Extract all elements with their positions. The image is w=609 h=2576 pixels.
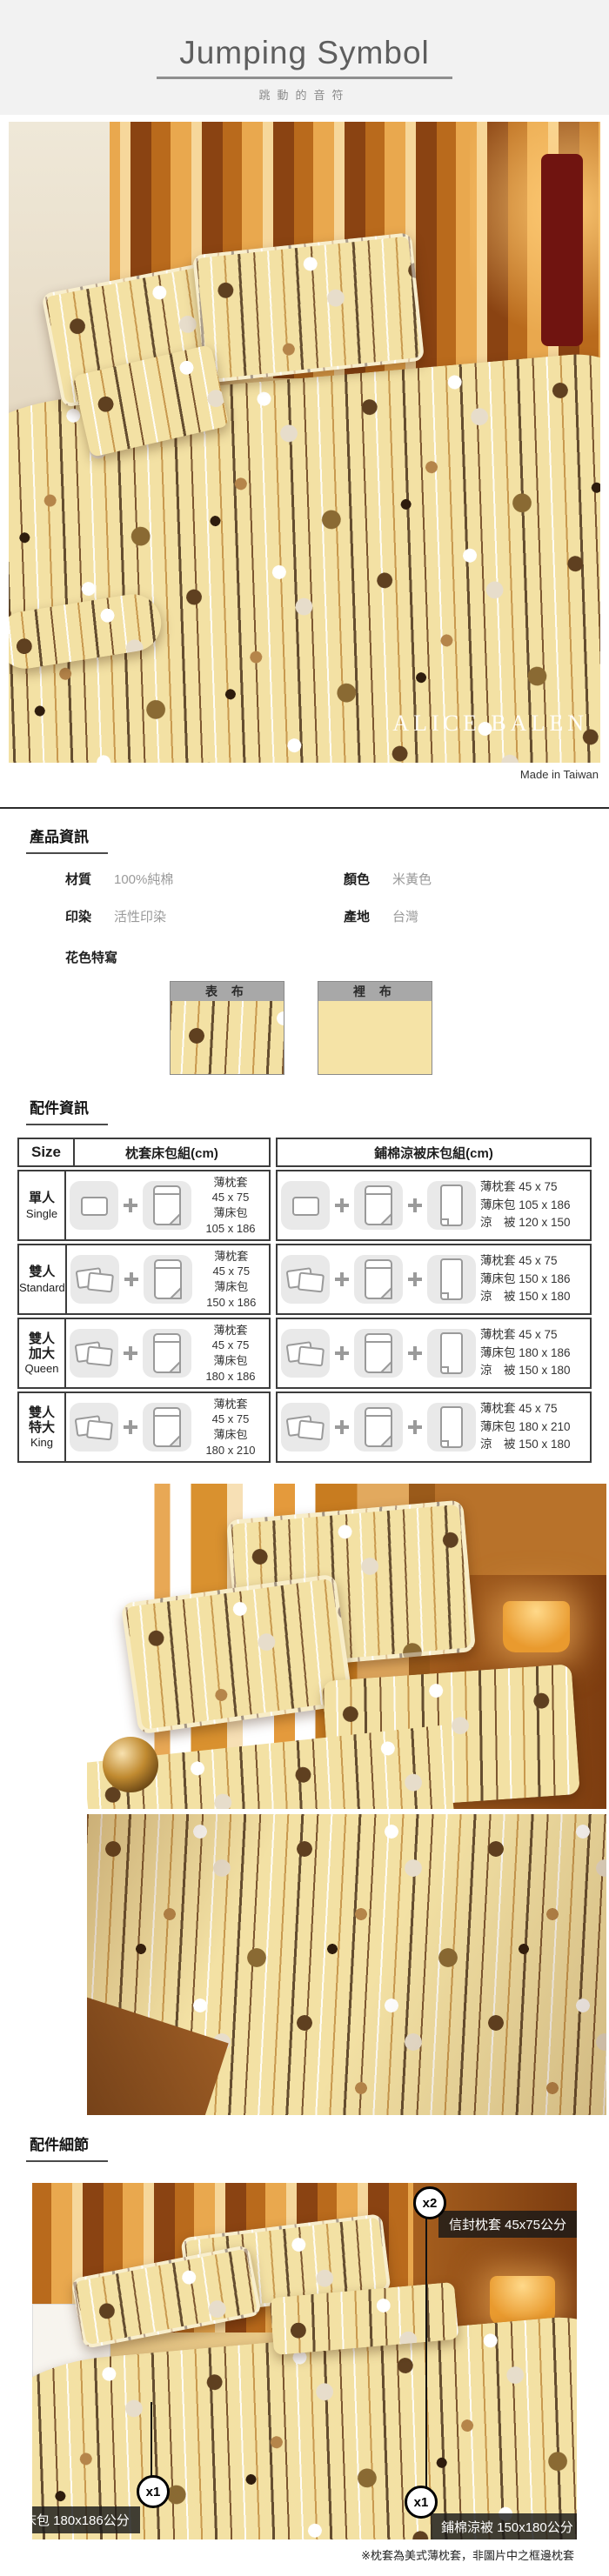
table-header-row: Size 枕套床包組(cm) xyxy=(17,1138,271,1167)
set-cell: 薄枕套45 x 75 薄床包180 x 186 xyxy=(66,1319,269,1387)
product-page: Jumping Symbol 跳動的音符 ALICE BALEN Made in… xyxy=(0,0,609,2576)
plus-icon xyxy=(124,1271,139,1287)
set-cell: 薄枕套 45 x 75 薄床包 150 x 186 涼 被 150 x 180 xyxy=(278,1245,599,1313)
set-cell: 薄枕套45 x 75 薄床包150 x 186 xyxy=(67,1245,270,1313)
table-row: 雙人特大 King 薄枕套45 x 75 薄床包180 x 210 xyxy=(17,1391,271,1463)
pillow-closeup-photo xyxy=(87,1484,606,1809)
pillow-pair-icon xyxy=(281,1403,330,1452)
table-row: 薄枕套 45 x 75 薄床包 150 x 186 涼 被 150 x 180 xyxy=(276,1244,592,1315)
table-row: 雙人 Standard 薄枕套45 x 75 薄床包150 x 186 xyxy=(17,1244,271,1315)
sheet-icon xyxy=(143,1181,191,1230)
material-value: 100%純棉 xyxy=(114,870,344,888)
set2-sizes: 薄枕套 45 x 75 薄床包 180 x 210 涼 被 150 x 180 xyxy=(480,1400,595,1455)
pillow-icon xyxy=(281,1181,330,1230)
quilt-icon xyxy=(427,1255,476,1304)
lining-fabric-swatch: 裡 布 xyxy=(318,981,432,1075)
size-en: Queen xyxy=(24,1362,58,1375)
size-header: Size xyxy=(19,1139,75,1165)
sheet-icon xyxy=(354,1329,403,1378)
quilt-callout-label: 鋪棉涼被 150x180公分 xyxy=(431,2513,577,2539)
table-row: 薄枕套 45 x 75 薄床包 105 x 186 涼 被 120 x 150 xyxy=(276,1170,592,1241)
hero-photo: ALICE BALEN xyxy=(9,122,600,763)
plus-icon xyxy=(123,1345,138,1361)
set1-sizes: 薄枕套45 x 75 薄床包180 x 186 xyxy=(196,1323,265,1384)
details-heading: 配件細節 xyxy=(26,2132,108,2162)
pillowcase-note: ※枕套為美式薄枕套，非圖片中之框邊枕套 xyxy=(361,2546,574,2563)
quilt-set-header: 鋪棉涼被床包組(cm) xyxy=(278,1139,590,1165)
lamp-shade xyxy=(503,1601,571,1653)
size-en: King xyxy=(30,1436,53,1449)
accessories-heading: 配件資訊 xyxy=(26,1096,108,1125)
brand-watermark: ALICE BALEN xyxy=(392,711,588,737)
lining-swatch-label: 裡 布 xyxy=(318,982,432,1001)
plus-icon xyxy=(334,1345,350,1361)
set-cell: 薄枕套 45 x 75 薄床包 105 x 186 涼 被 120 x 150 xyxy=(278,1171,599,1239)
quilt-icon xyxy=(427,1181,476,1230)
set2-sizes: 薄枕套 45 x 75 薄床包 150 x 186 涼 被 150 x 180 xyxy=(480,1252,595,1307)
quilt-count-badge: x1 xyxy=(405,2486,438,2519)
brass-ball-ornament xyxy=(103,1737,158,1792)
size-cell: 雙人 Standard xyxy=(19,1245,67,1313)
duvet-closeup-photo xyxy=(87,1814,606,2115)
set-cell: 薄枕套 45 x 75 薄床包 180 x 186 涼 被 150 x 180 xyxy=(278,1319,599,1387)
plus-icon xyxy=(407,1419,423,1435)
size-zh: 單人 xyxy=(26,1191,57,1205)
plus-icon xyxy=(407,1198,423,1213)
sheet-icon xyxy=(354,1403,403,1452)
front-swatch-label: 表 布 xyxy=(171,982,284,1001)
set-cell: 薄枕套 45 x 75 薄床包 180 x 210 涼 被 150 x 180 xyxy=(278,1393,599,1461)
plus-icon xyxy=(334,1271,350,1287)
table-header-row: 鋪棉涼被床包組(cm) xyxy=(276,1138,592,1167)
product-info-heading: 產品資訊 xyxy=(26,824,108,854)
callout-line-quilt xyxy=(425,2216,427,2496)
plus-icon xyxy=(123,1419,138,1435)
size-en: Single xyxy=(26,1207,57,1220)
sheet-count-badge: x1 xyxy=(137,2475,170,2508)
front-swatch-image xyxy=(171,1001,284,1074)
quilt-icon xyxy=(427,1329,476,1378)
accessories-table: Size 枕套床包組(cm) 單人 Single 薄枕套45 x 75 薄床包1… xyxy=(17,1138,592,1463)
size-en: Standard xyxy=(19,1281,65,1294)
pillow-pair-icon xyxy=(70,1255,119,1304)
pillowcase-callout-label: 信封枕套 45x75公分 xyxy=(438,2211,577,2238)
pillow-right xyxy=(192,232,425,384)
table-row: 雙人加大 Queen 薄枕套45 x 75 薄床包180 x 186 xyxy=(17,1318,271,1389)
pillow-set-header: 枕套床包組(cm) xyxy=(75,1139,269,1165)
size-zh: 雙人加大 xyxy=(26,1331,57,1362)
size-cell: 單人 Single xyxy=(19,1171,66,1239)
sheet-icon xyxy=(143,1403,191,1452)
front-fabric-swatch: 表 布 xyxy=(170,981,284,1075)
print-label: 印染 xyxy=(65,907,114,925)
print-value: 活性印染 xyxy=(114,907,344,925)
product-info-grid: 材質 100%純棉 顏色 米黃色 印染 活性印染 產地 台灣 xyxy=(65,870,552,925)
pillow-pair-icon xyxy=(281,1255,330,1304)
pillow-pair-icon xyxy=(70,1329,118,1378)
section-divider xyxy=(0,807,609,809)
table-row: 單人 Single 薄枕套45 x 75 薄床包105 x 186 xyxy=(17,1170,271,1241)
lining-swatch-body xyxy=(318,1001,432,1074)
plus-icon xyxy=(407,1271,423,1287)
pattern-closeup-heading: 花色特寫 xyxy=(65,948,117,966)
size-zh: 雙人 xyxy=(26,1265,57,1279)
page-title: Jumping Symbol xyxy=(157,35,452,79)
lamp-column xyxy=(541,154,583,346)
quilt-set-table: 鋪棉涼被床包組(cm) 薄枕套 45 x 75 薄床包 105 x 186 涼 … xyxy=(276,1138,592,1463)
set1-sizes: 薄枕套45 x 75 薄床包105 x 186 xyxy=(196,1175,265,1236)
set-cell: 薄枕套45 x 75 薄床包105 x 186 xyxy=(66,1171,269,1239)
plus-icon xyxy=(334,1419,350,1435)
sheet-icon xyxy=(354,1181,403,1230)
plus-icon xyxy=(407,1345,423,1361)
set-cell: 薄枕套45 x 75 薄床包180 x 210 xyxy=(66,1393,269,1461)
pillow-pair-icon xyxy=(70,1403,118,1452)
details-photo: x2 信封枕套 45x75公分 x1 薄床包 180x186公分 x1 鋪棉涼被… xyxy=(32,2183,577,2539)
material-label: 材質 xyxy=(65,870,114,888)
plus-icon xyxy=(123,1198,138,1213)
size-cell: 雙人特大 King xyxy=(19,1393,66,1461)
quilt-icon xyxy=(427,1403,476,1452)
pillow-set-table: Size 枕套床包組(cm) 單人 Single 薄枕套45 x 75 薄床包1… xyxy=(17,1138,271,1463)
pillowcase-count-badge: x2 xyxy=(413,2186,446,2219)
made-in-label: Made in Taiwan xyxy=(520,768,599,781)
plus-icon xyxy=(334,1198,350,1213)
sheet-icon xyxy=(354,1255,403,1304)
sheet-callout-label: 薄床包 180x186公分 xyxy=(32,2506,140,2533)
color-label: 顏色 xyxy=(344,870,392,888)
size-zh: 雙人特大 xyxy=(26,1405,57,1436)
sheet-icon xyxy=(143,1329,191,1378)
table-row: 薄枕套 45 x 75 薄床包 180 x 186 涼 被 150 x 180 xyxy=(276,1318,592,1389)
set2-sizes: 薄枕套 45 x 75 薄床包 105 x 186 涼 被 120 x 150 xyxy=(480,1178,595,1233)
page-header: Jumping Symbol 跳動的音符 xyxy=(0,0,609,115)
pillow-icon xyxy=(70,1181,118,1230)
table-row: 薄枕套 45 x 75 薄床包 180 x 210 涼 被 150 x 180 xyxy=(276,1391,592,1463)
sheet-icon xyxy=(144,1255,192,1304)
color-value: 米黃色 xyxy=(392,870,552,888)
size-cell: 雙人加大 Queen xyxy=(19,1319,66,1387)
origin-value: 台灣 xyxy=(392,907,552,925)
pillow-pair-icon xyxy=(281,1329,330,1378)
set2-sizes: 薄枕套 45 x 75 薄床包 180 x 186 涼 被 150 x 180 xyxy=(480,1326,595,1381)
page-subtitle: 跳動的音符 xyxy=(0,86,609,103)
set1-sizes: 薄枕套45 x 75 薄床包150 x 186 xyxy=(197,1249,266,1310)
origin-label: 產地 xyxy=(344,907,392,925)
set1-sizes: 薄枕套45 x 75 薄床包180 x 210 xyxy=(196,1397,265,1458)
